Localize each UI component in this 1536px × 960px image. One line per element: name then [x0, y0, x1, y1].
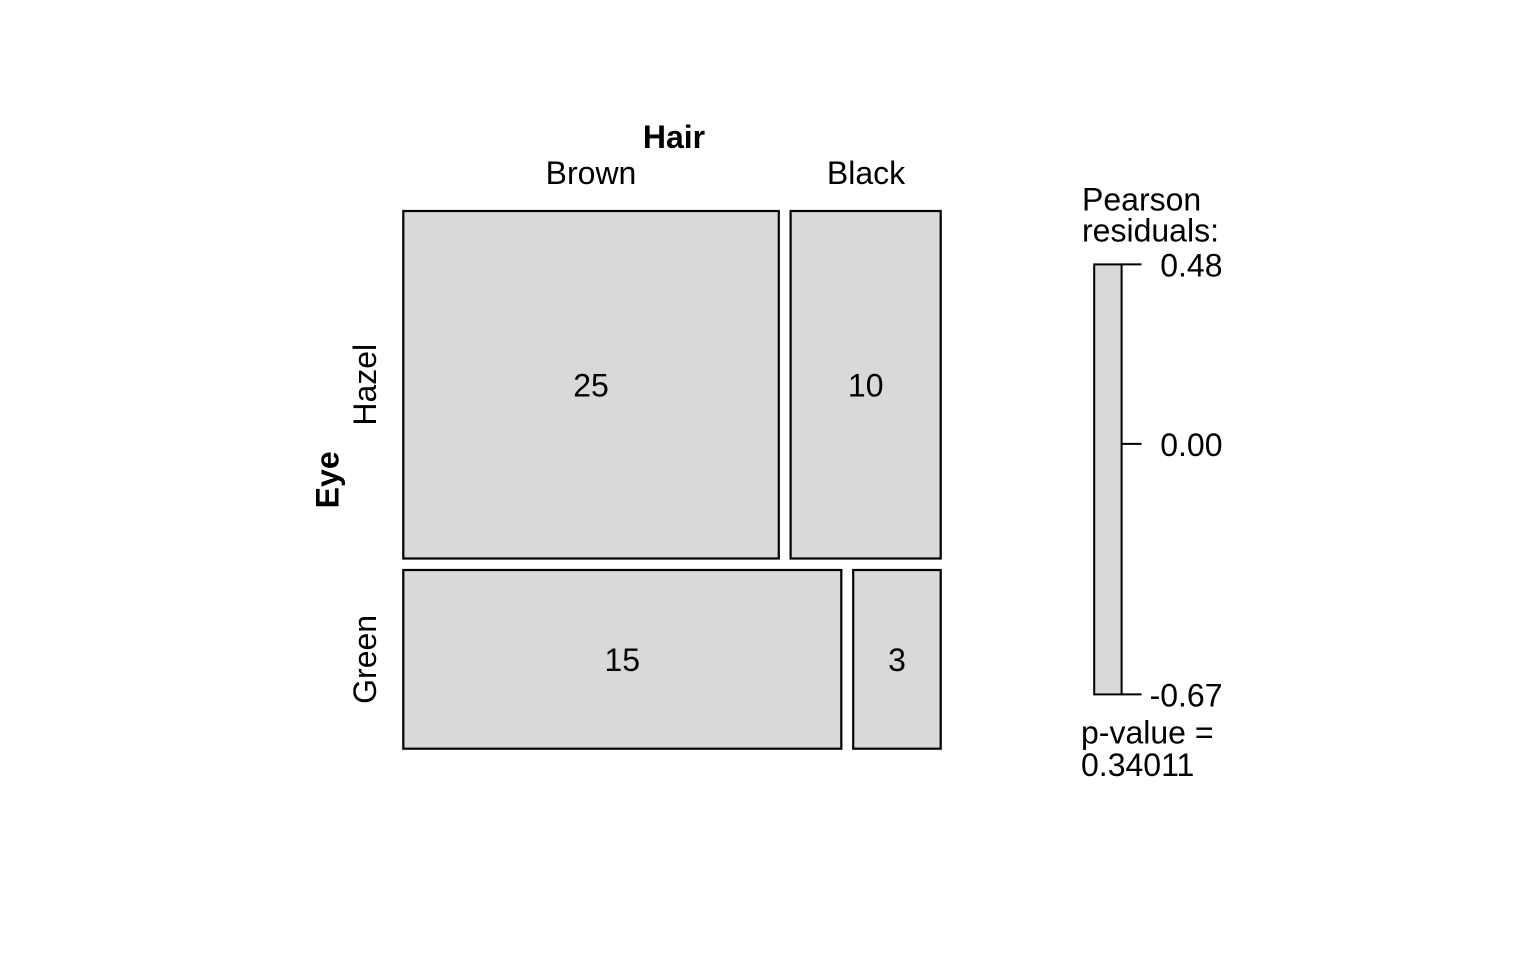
svg-text:25: 25 [573, 368, 609, 404]
svg-text:Eye: Eye [310, 451, 346, 508]
svg-text:Hazel: Hazel [347, 344, 383, 426]
svg-text:Black: Black [827, 155, 906, 191]
svg-text:15: 15 [605, 642, 641, 678]
svg-text:3: 3 [888, 642, 906, 678]
svg-text:0.34011: 0.34011 [1081, 747, 1194, 783]
svg-text:Green: Green [347, 615, 383, 704]
svg-text:-0.67: -0.67 [1150, 678, 1223, 714]
svg-text:Hair: Hair [643, 119, 705, 155]
svg-text:0.00: 0.00 [1160, 427, 1222, 463]
svg-text:p-value =: p-value = [1081, 715, 1214, 751]
svg-text:0.48: 0.48 [1160, 248, 1222, 284]
svg-text:residuals:: residuals: [1082, 213, 1219, 249]
svg-text:Brown: Brown [546, 155, 637, 191]
svg-text:10: 10 [848, 368, 884, 404]
